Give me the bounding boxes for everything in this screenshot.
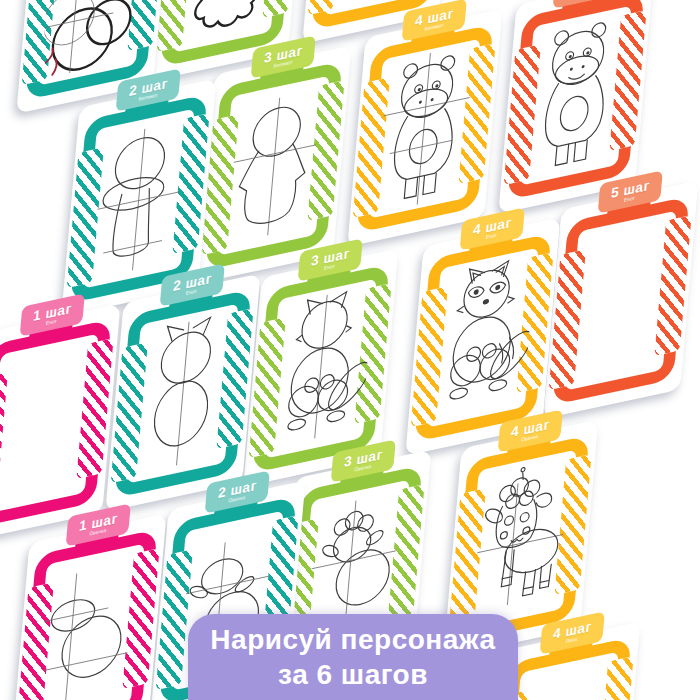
animal-sketch-hippo5 — [522, 8, 630, 185]
animal-sketch-raccoon2 — [129, 306, 237, 483]
banner-line-1: Нарисуй персонажа — [210, 625, 495, 655]
drawing-card-yellow-r1: 4 шагБегемот — [347, 8, 502, 246]
animal-sketch-raccoon3 — [267, 281, 375, 458]
drawing-card-pink-r2: 1 шагЕнот — [0, 303, 120, 541]
animal-sketch-raccoon4 — [429, 250, 537, 427]
animal-sketch-sheep4 — [467, 452, 575, 629]
animal-sketch-hippo3 — [220, 78, 328, 255]
drawing-card-teal-r2: 2 шагЕнот — [105, 273, 260, 511]
animal-sketch-hippo4 — [371, 41, 479, 218]
drawing-card-orange-r2: 5 шагЕнот — [543, 180, 698, 418]
drawing-card-pink-r3: 1 шагОвечка — [11, 513, 166, 700]
animal-sketch-none — [0, 336, 97, 513]
animal-sketch-sheep1 — [35, 546, 143, 700]
banner-line-2: за 6 шагов — [278, 660, 428, 690]
animal-sketch-hippo2 — [85, 111, 193, 288]
animal-sketch-none — [567, 213, 675, 390]
caption-banner: Нарисуй персонажа за 6 шагов — [188, 614, 518, 700]
card-deck-mockup: 1 шагЕнот1 шагОвечка2 шаг2 шагБегемот2 ш… — [0, 0, 700, 700]
